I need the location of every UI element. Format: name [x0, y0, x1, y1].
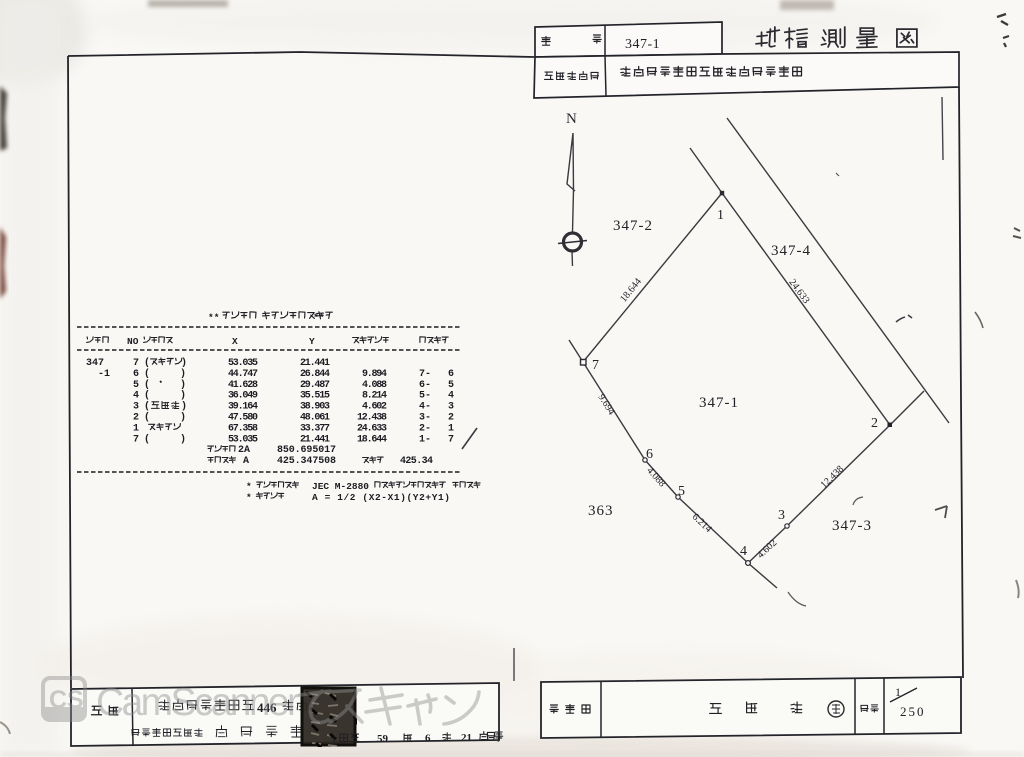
svg-text:(: (: [144, 412, 150, 424]
svg-text:Y: Y: [309, 336, 315, 347]
svg-text:7: 7: [448, 434, 454, 445]
svg-text:2A: 2A: [238, 445, 250, 456]
svg-text:2-: 2-: [419, 423, 431, 434]
svg-text:(: (: [144, 368, 150, 380]
svg-text:): ): [497, 731, 501, 743]
svg-text:24.633: 24.633: [357, 423, 387, 434]
svg-text:347-1: 347-1: [625, 37, 660, 52]
svg-text:6: 6: [646, 447, 653, 462]
svg-text:4: 4: [740, 544, 747, 559]
svg-text:CamScanner: CamScanner: [96, 681, 300, 724]
svg-text:35.515: 35.515: [300, 391, 330, 402]
svg-text:4: 4: [448, 391, 454, 402]
svg-text:4.088: 4.088: [362, 380, 387, 391]
svg-text:6: 6: [448, 369, 454, 380]
svg-text:29.487: 29.487: [300, 380, 330, 391]
svg-text:4-: 4-: [419, 402, 431, 413]
svg-text:33.377: 33.377: [300, 423, 330, 434]
svg-text:41.628: 41.628: [228, 380, 258, 391]
svg-text:3: 3: [448, 402, 454, 413]
svg-text:-1: -1: [98, 369, 110, 380]
svg-text:347-4: 347-4: [771, 243, 811, 259]
svg-text:425.34: 425.34: [400, 456, 433, 467]
svg-text:47.580: 47.580: [228, 413, 258, 424]
svg-text:2: 2: [448, 413, 454, 424]
svg-text:6-: 6-: [419, 380, 431, 391]
svg-text:): ): [180, 368, 186, 380]
svg-text:7: 7: [133, 434, 139, 445]
svg-text:): ): [180, 390, 186, 402]
svg-text:3: 3: [133, 402, 139, 413]
svg-text:6: 6: [425, 733, 431, 745]
svg-text:4.602: 4.602: [362, 402, 387, 413]
svg-text:A: A: [243, 456, 249, 467]
svg-text:): ): [180, 433, 186, 445]
svg-text:363: 363: [588, 503, 614, 519]
svg-text:): ): [181, 357, 187, 369]
svg-text:7-: 7-: [419, 369, 431, 380]
svg-text:250: 250: [900, 704, 926, 719]
svg-text:(: (: [144, 357, 150, 369]
svg-text:(: (: [144, 433, 150, 445]
svg-text:53.035: 53.035: [228, 434, 258, 445]
svg-text:NO: NO: [127, 336, 139, 347]
svg-text:18.644: 18.644: [357, 434, 387, 445]
svg-text:36.049: 36.049: [228, 391, 258, 402]
svg-text:347-3: 347-3: [832, 518, 872, 534]
svg-text:53.035: 53.035: [228, 358, 258, 369]
svg-text:21.441: 21.441: [300, 358, 330, 369]
svg-text:425.347508: 425.347508: [277, 456, 336, 467]
svg-text:*: *: [246, 481, 252, 492]
svg-text:8.214: 8.214: [362, 391, 387, 402]
svg-text:3: 3: [778, 508, 785, 523]
svg-text:(: (: [144, 390, 150, 402]
svg-text:5: 5: [133, 380, 139, 391]
svg-text:1: 1: [717, 208, 724, 223]
svg-text:39.164: 39.164: [228, 402, 258, 413]
svg-text:N: N: [566, 111, 577, 127]
svg-text:): ): [180, 379, 186, 391]
svg-text:JEC M-2880: JEC M-2880: [312, 481, 369, 492]
svg-text:(: (: [333, 734, 337, 746]
svg-text:38.903: 38.903: [300, 402, 330, 413]
svg-text:*: *: [246, 492, 252, 503]
svg-text:9.894: 9.894: [362, 369, 387, 380]
svg-text:5: 5: [448, 380, 454, 391]
svg-text:1: 1: [133, 423, 139, 434]
svg-text:347-2: 347-2: [613, 218, 653, 234]
svg-text:): ): [180, 412, 186, 424]
svg-text:21: 21: [461, 732, 472, 744]
svg-text:67.358: 67.358: [228, 423, 258, 434]
svg-text:5: 5: [678, 484, 685, 499]
svg-text:347: 347: [86, 358, 104, 369]
svg-text:7: 7: [592, 358, 599, 373]
svg-text:26.844: 26.844: [300, 369, 330, 380]
svg-text:X: X: [232, 336, 238, 347]
svg-text:59: 59: [377, 733, 389, 745]
svg-text:4: 4: [133, 391, 139, 402]
svg-text:7: 7: [133, 358, 139, 369]
svg-text:21.441: 21.441: [300, 434, 330, 445]
svg-text:(: (: [144, 401, 150, 413]
svg-text:**: **: [208, 312, 219, 323]
svg-text:): ): [181, 401, 187, 413]
svg-text:(: (: [144, 379, 150, 391]
svg-text:A = 1/2 (X2-X1)(Y2+Y1): A = 1/2 (X2-X1)(Y2+Y1): [312, 492, 450, 503]
svg-text:48.061: 48.061: [300, 413, 330, 424]
svg-text:44.747: 44.747: [228, 369, 258, 380]
svg-text:5-: 5-: [419, 391, 431, 402]
svg-text:1: 1: [448, 423, 454, 434]
svg-text:1-: 1-: [419, 434, 431, 445]
svg-text:850.695017: 850.695017: [277, 445, 336, 456]
svg-text:2: 2: [133, 413, 139, 424]
svg-text:3-: 3-: [419, 413, 431, 424]
svg-text:12.438: 12.438: [357, 413, 387, 424]
svg-text:2: 2: [871, 416, 878, 431]
svg-text:6: 6: [133, 369, 139, 380]
svg-text:347-1: 347-1: [699, 395, 739, 411]
